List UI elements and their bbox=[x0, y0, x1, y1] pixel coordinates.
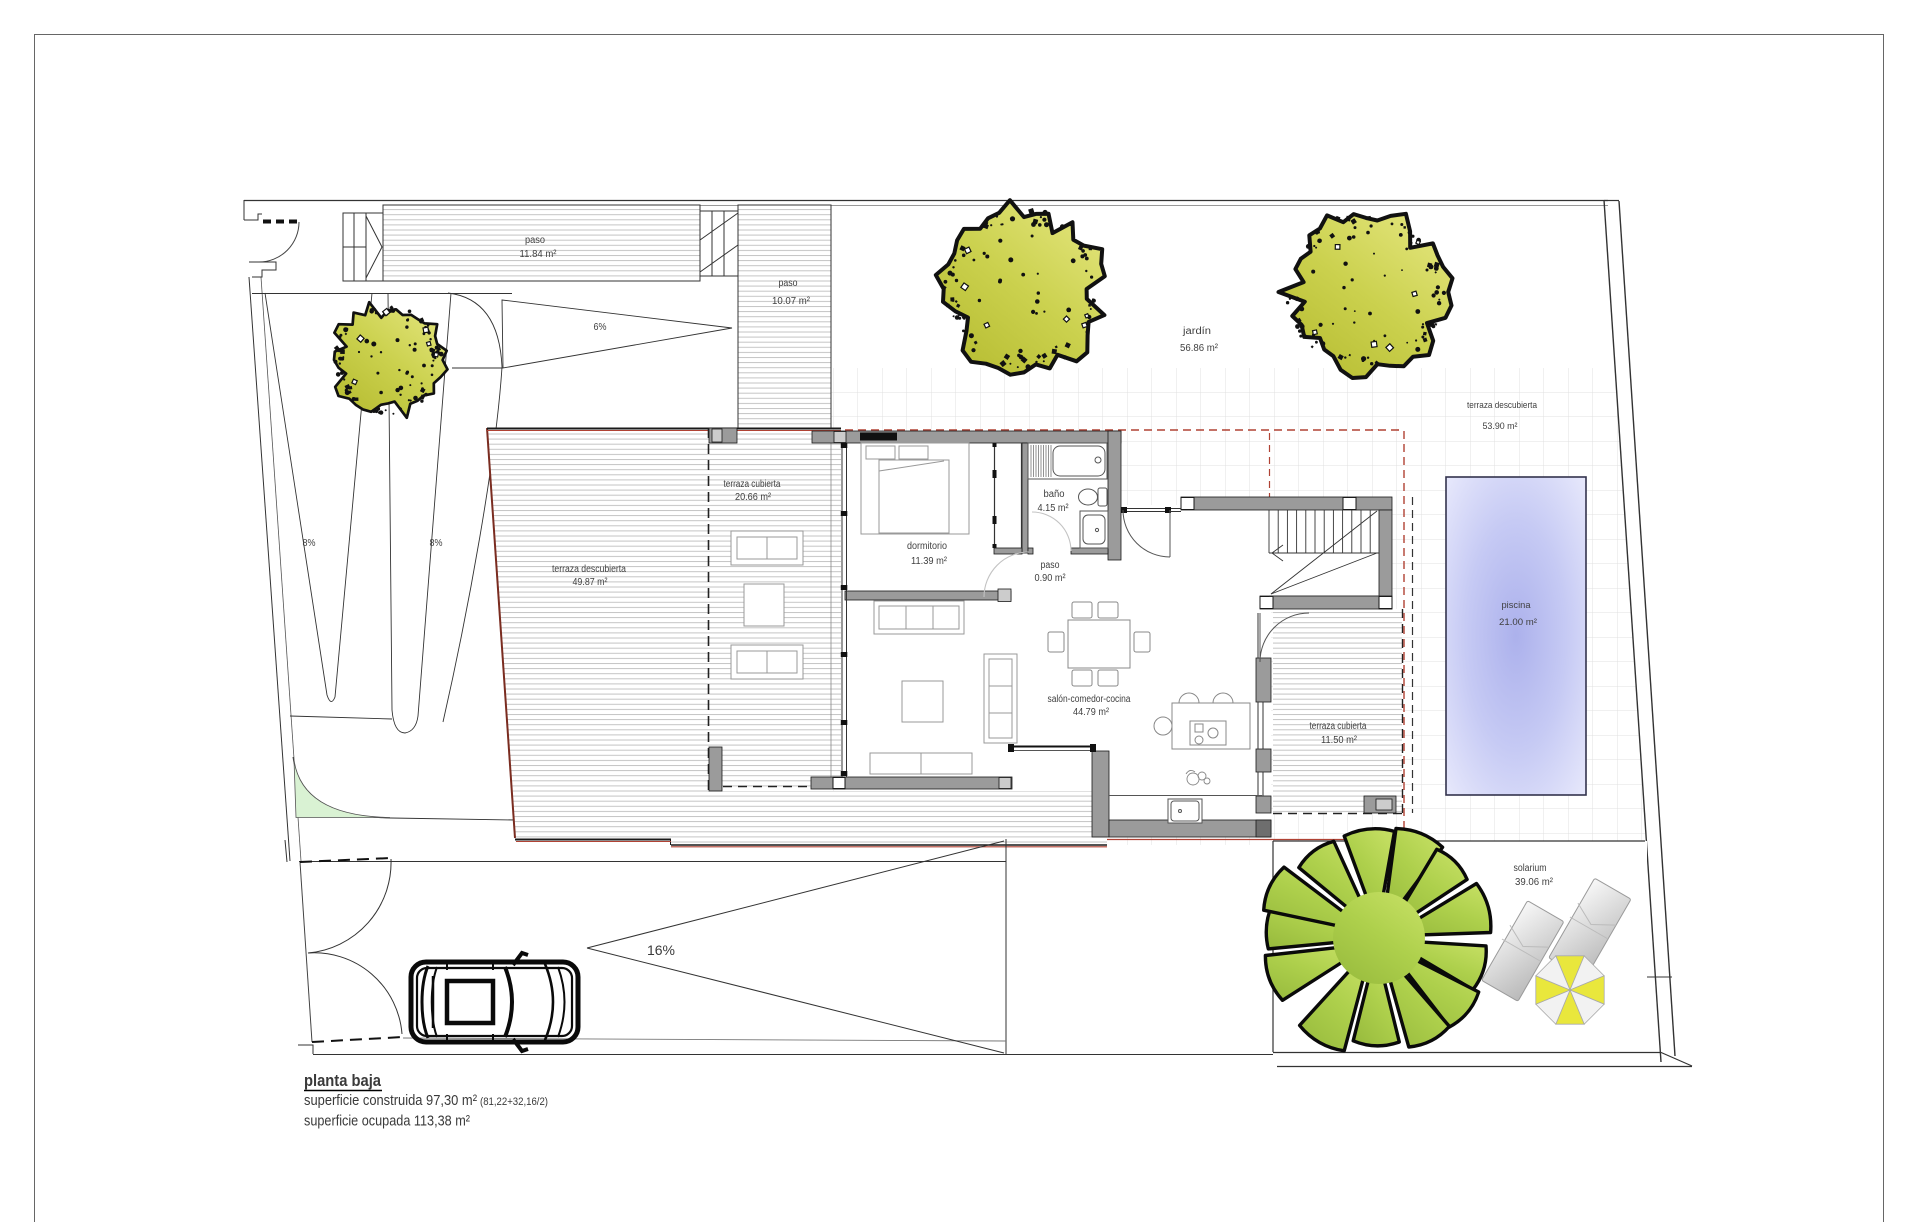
svg-text:21.00 m²: 21.00 m² bbox=[1499, 617, 1537, 628]
svg-text:terraza descubierta: terraza descubierta bbox=[1467, 400, 1538, 411]
svg-text:44.79 m²: 44.79 m² bbox=[1073, 707, 1110, 718]
svg-text:jardín: jardín bbox=[1182, 326, 1211, 337]
svg-text:16%: 16% bbox=[647, 942, 675, 958]
svg-text:piscina: piscina bbox=[1502, 600, 1532, 611]
svg-text:10.07 m²: 10.07 m² bbox=[772, 296, 811, 307]
svg-text:superficie ocupada 113,38 m²: superficie ocupada 113,38 m² bbox=[304, 1113, 470, 1130]
svg-text:8%: 8% bbox=[303, 538, 316, 549]
svg-text:8%: 8% bbox=[430, 538, 443, 549]
svg-text:baño: baño bbox=[1044, 489, 1065, 500]
svg-text:(81,22+32,16/2): (81,22+32,16/2) bbox=[480, 1096, 548, 1108]
svg-text:20.66 m²: 20.66 m² bbox=[735, 492, 772, 503]
svg-text:terraza descubierta: terraza descubierta bbox=[552, 564, 626, 575]
svg-text:4.15 m²: 4.15 m² bbox=[1038, 503, 1070, 514]
svg-text:solarium: solarium bbox=[1514, 863, 1547, 874]
svg-text:53.90 m²: 53.90 m² bbox=[1483, 421, 1518, 432]
svg-text:planta baja: planta baja bbox=[304, 1072, 382, 1090]
svg-text:49.87 m²: 49.87 m² bbox=[573, 577, 609, 588]
svg-text:11.50 m²: 11.50 m² bbox=[1321, 735, 1358, 746]
svg-text:39.06 m²: 39.06 m² bbox=[1515, 877, 1554, 888]
svg-text:paso: paso bbox=[779, 278, 798, 289]
svg-text:terraza cubierta: terraza cubierta bbox=[724, 479, 781, 490]
svg-text:terraza cubierta: terraza cubierta bbox=[1310, 721, 1367, 732]
svg-text:salón-comedor-cocina: salón-comedor-cocina bbox=[1048, 694, 1131, 705]
svg-text:paso: paso bbox=[525, 235, 545, 246]
svg-text:paso: paso bbox=[1041, 560, 1060, 571]
svg-text:dormitorio: dormitorio bbox=[907, 541, 947, 552]
svg-text:superficie construida 97,30 m²: superficie construida 97,30 m² bbox=[304, 1092, 477, 1109]
svg-text:0.90 m²: 0.90 m² bbox=[1035, 573, 1067, 584]
svg-text:11.84 m²: 11.84 m² bbox=[520, 249, 558, 260]
svg-text:11.39 m²: 11.39 m² bbox=[911, 556, 948, 567]
svg-text:6%: 6% bbox=[594, 322, 607, 333]
svg-text:56.86 m²: 56.86 m² bbox=[1180, 343, 1219, 354]
